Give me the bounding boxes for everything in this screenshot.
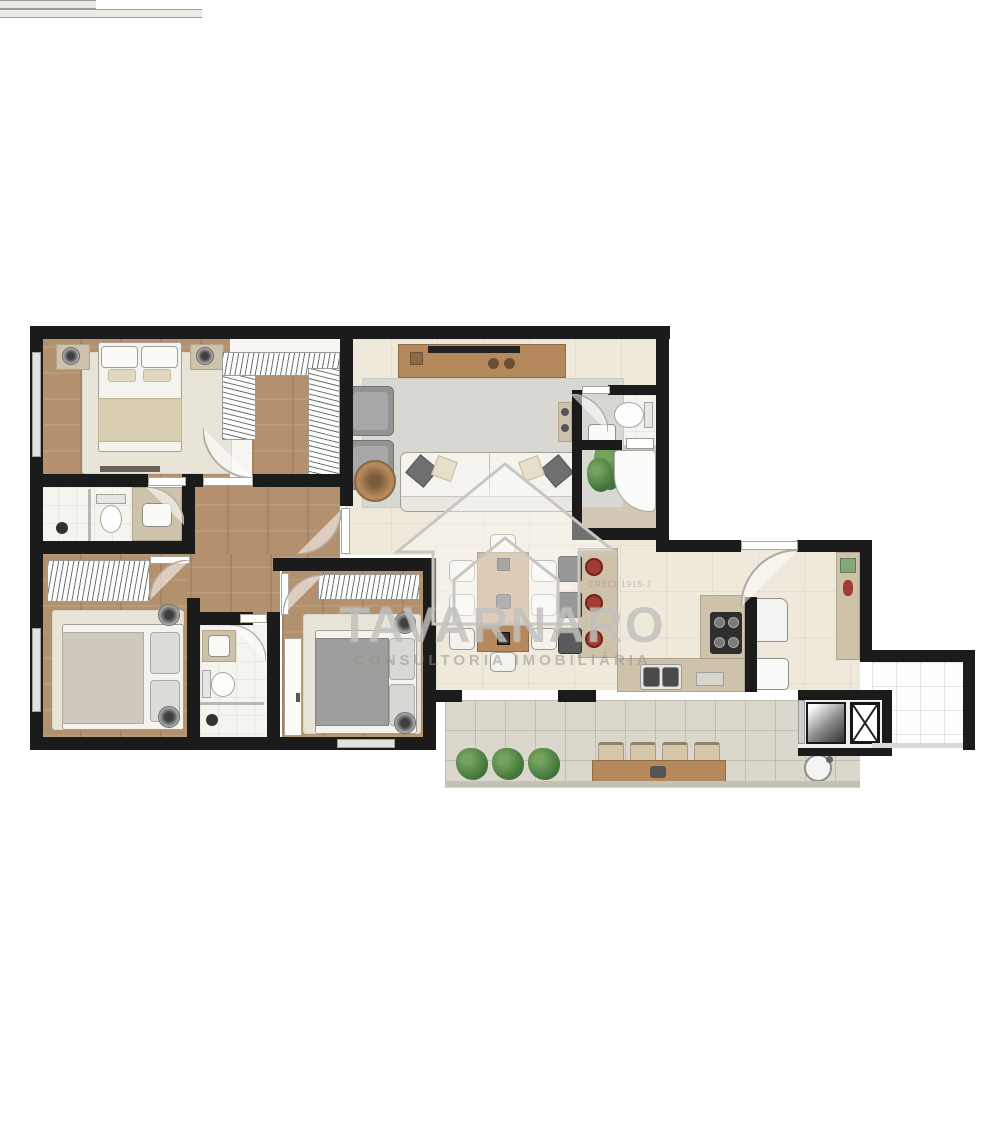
wall-balcony-b xyxy=(558,690,596,702)
wall-socialbath-mid xyxy=(572,440,622,450)
shaft-x-icon xyxy=(853,705,877,741)
pillow xyxy=(141,346,178,368)
window-master-bedroom xyxy=(32,352,41,457)
door-leaf-social-bath xyxy=(582,386,610,394)
plant-icon xyxy=(528,748,560,780)
plant-icon xyxy=(456,748,488,780)
window-bedroom3 xyxy=(337,739,395,748)
burner-icon xyxy=(714,617,725,628)
bed-foot-runner xyxy=(100,466,160,472)
door-leaf-bathroom2 xyxy=(240,614,267,623)
sink-icon xyxy=(208,635,230,657)
balcony-chair xyxy=(598,742,624,762)
wall-masterbath-bottom xyxy=(30,541,195,554)
lamp-icon xyxy=(158,604,180,626)
wall-living-right xyxy=(656,326,669,552)
shower-head-icon xyxy=(56,522,68,534)
cooktop-icon xyxy=(710,612,742,654)
door-arc-social-bath xyxy=(570,394,608,432)
armchair-seat xyxy=(353,392,388,430)
bed-blanket xyxy=(98,398,182,442)
wall-terrace-top xyxy=(860,650,975,662)
door-arc-hall-living xyxy=(297,510,341,554)
door-arc-master-bath xyxy=(146,487,184,525)
bedroom3-closet xyxy=(284,638,302,736)
faucet-icon xyxy=(826,756,833,763)
toilet-bowl xyxy=(100,505,122,533)
bed2-blanket xyxy=(62,632,144,724)
plant-icon xyxy=(492,748,524,780)
balcony-chair xyxy=(630,742,656,762)
wall-suite-hall xyxy=(253,474,345,487)
lamp-icon xyxy=(196,347,214,365)
sink-basin xyxy=(662,667,679,687)
toilet-tank xyxy=(202,670,211,698)
wall-nook-top xyxy=(798,690,892,700)
closet-rack-right xyxy=(308,368,340,478)
tv-decor xyxy=(488,358,499,369)
wall-socialbath-top xyxy=(608,385,656,395)
balcony-railing xyxy=(445,781,860,787)
burner-icon xyxy=(728,617,739,628)
wall-masterbath-top-a xyxy=(30,474,148,487)
table-decor xyxy=(650,766,666,778)
pillow xyxy=(150,632,180,674)
door-arc-bathroom2 xyxy=(230,625,266,661)
shower-glass xyxy=(200,702,264,705)
wall-terrace-right xyxy=(963,650,975,750)
door-leaf-master-bath xyxy=(148,477,186,486)
wall-top xyxy=(30,326,670,339)
wall-closet-right xyxy=(340,339,353,506)
door-arc-bedroom2 xyxy=(150,560,190,600)
wall-kitchen-top-a xyxy=(656,540,741,552)
laundry-tank xyxy=(753,658,789,690)
sink-basin xyxy=(643,667,660,687)
door-leaf-master-suite xyxy=(203,477,253,486)
toilet-tank xyxy=(644,402,653,428)
lamp-icon xyxy=(62,347,80,365)
window-wall-balcony xyxy=(0,9,202,18)
tv-decor xyxy=(504,358,515,369)
toilet-bowl xyxy=(211,672,235,697)
wall-niche xyxy=(626,438,654,449)
console-decor xyxy=(561,424,569,432)
door-arc-master-suite xyxy=(203,428,253,478)
watermark-tagline: CONSULTORIA IMOBILIÁRIA xyxy=(348,652,658,669)
lamp-icon xyxy=(394,712,416,734)
terrace-edge xyxy=(872,743,963,748)
toilet-tank xyxy=(96,494,126,504)
wall-service-right xyxy=(860,540,872,662)
washing-machine xyxy=(806,702,846,744)
nook-door-strip xyxy=(798,700,805,744)
window-bedroom2 xyxy=(32,628,41,712)
balcony-chair xyxy=(694,742,720,762)
wall-nook-bottom xyxy=(798,748,892,756)
shower-glass xyxy=(88,489,91,541)
cushion xyxy=(108,369,136,382)
burner-icon xyxy=(728,637,739,648)
pillow xyxy=(101,346,138,368)
closet-aisle-floor xyxy=(252,361,310,478)
wall-kitchen-divider xyxy=(745,597,757,692)
burner-icon xyxy=(714,637,725,648)
cushion xyxy=(143,369,171,382)
balcony-chair xyxy=(662,742,688,762)
door-arc-bedroom3 xyxy=(283,575,323,615)
red-utensil xyxy=(843,580,853,596)
duct-shaft xyxy=(850,702,880,744)
tv-decor xyxy=(410,352,423,365)
floor-plan-image: CRECI 1915-J TAVARNARO CONSULTORIA IMOBI… xyxy=(0,0,1000,1126)
shower-head-icon xyxy=(206,714,218,726)
tv-icon xyxy=(428,346,520,353)
door-arc-entry xyxy=(741,550,798,607)
door-leaf-entry xyxy=(741,541,798,550)
door-leaf-hall-living xyxy=(341,508,350,554)
dish-rack xyxy=(696,672,724,686)
watermark-brand: TAVARNARO xyxy=(330,596,675,654)
lamp-icon xyxy=(158,706,180,728)
watermark-registration: CRECI 1915-J xyxy=(588,580,668,589)
closet-handle xyxy=(296,693,300,702)
toilet-bowl xyxy=(614,402,644,428)
console-decor xyxy=(561,408,569,416)
bedroom2-wardrobe xyxy=(47,560,150,602)
plant-box xyxy=(840,558,856,573)
wall-bathroom2-right xyxy=(267,612,280,750)
sliding-door-balcony xyxy=(0,0,96,9)
wall-balcony-a xyxy=(436,690,462,702)
